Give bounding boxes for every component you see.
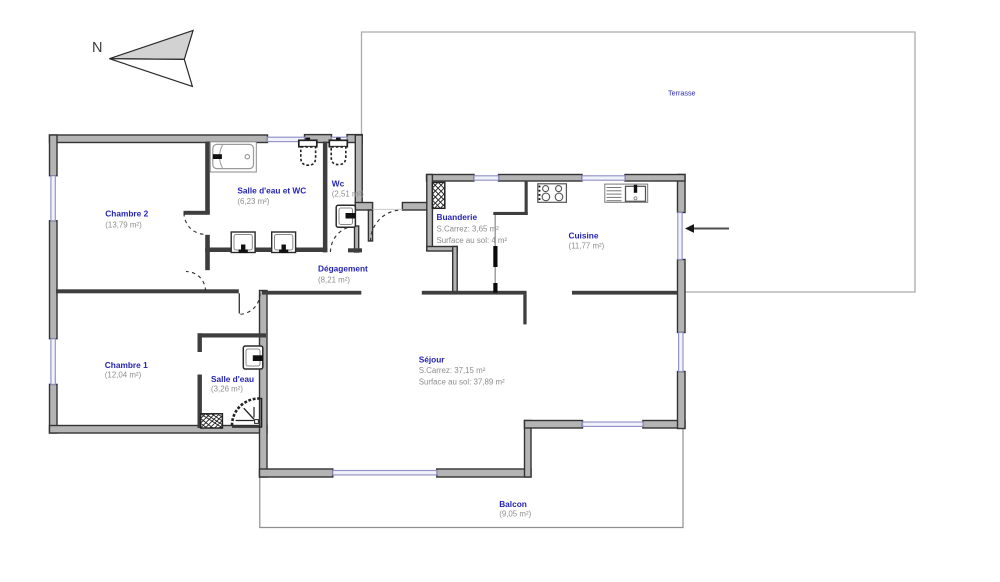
- svg-text:(9,05 m²): (9,05 m²): [499, 510, 531, 519]
- svg-text:Séjour: Séjour: [419, 355, 446, 365]
- svg-text:Dégagement: Dégagement: [318, 264, 368, 274]
- svg-text:(8,21 m²): (8,21 m²): [318, 276, 350, 285]
- svg-text:Chambre 2: Chambre 2: [105, 209, 148, 219]
- svg-text:(6,23 m²): (6,23 m²): [237, 197, 269, 206]
- svg-text:(3,26 m²): (3,26 m²): [211, 385, 243, 394]
- svg-text:Terrasse: Terrasse: [668, 89, 696, 98]
- svg-text:S.Carrez: 37,15 m²: S.Carrez: 37,15 m²: [419, 366, 486, 375]
- svg-text:N: N: [92, 40, 102, 56]
- svg-text:Surface au sol: 4 m²: Surface au sol: 4 m²: [437, 236, 508, 245]
- svg-text:Wc: Wc: [332, 179, 345, 189]
- svg-text:(13,79 m²): (13,79 m²): [105, 220, 142, 229]
- svg-text:Surface au sol: 37,89 m²: Surface au sol: 37,89 m²: [419, 378, 505, 387]
- svg-text:S.Carrez: 3,65 m²: S.Carrez: 3,65 m²: [437, 225, 500, 234]
- svg-text:Salle d'eau: Salle d'eau: [211, 374, 254, 384]
- svg-text:Salle d'eau et WC: Salle d'eau et WC: [237, 186, 306, 196]
- svg-text:Balcon: Balcon: [499, 499, 527, 509]
- svg-text:(11,77 m²): (11,77 m²): [569, 242, 605, 251]
- svg-text:Chambre 1: Chambre 1: [105, 360, 148, 370]
- svg-text:(2,51 m²): (2,51 m²): [332, 190, 364, 199]
- svg-text:Buanderie: Buanderie: [437, 212, 478, 222]
- svg-text:(12,04 m²): (12,04 m²): [105, 371, 142, 380]
- svg-text:Cuisine: Cuisine: [569, 231, 599, 241]
